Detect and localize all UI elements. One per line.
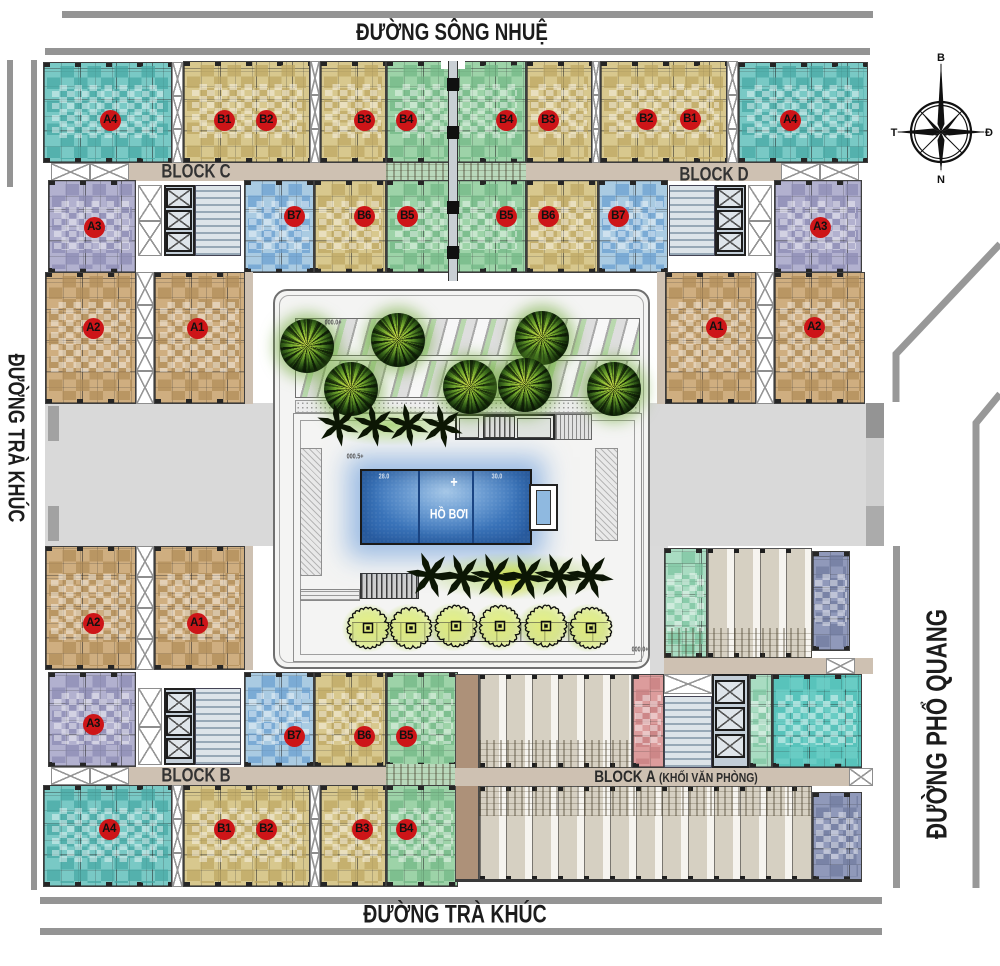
- svg-text:T: T: [891, 127, 898, 139]
- svg-text:N: N: [937, 174, 945, 185]
- svg-text:B: B: [937, 52, 945, 64]
- svg-text:Đ: Đ: [985, 127, 993, 139]
